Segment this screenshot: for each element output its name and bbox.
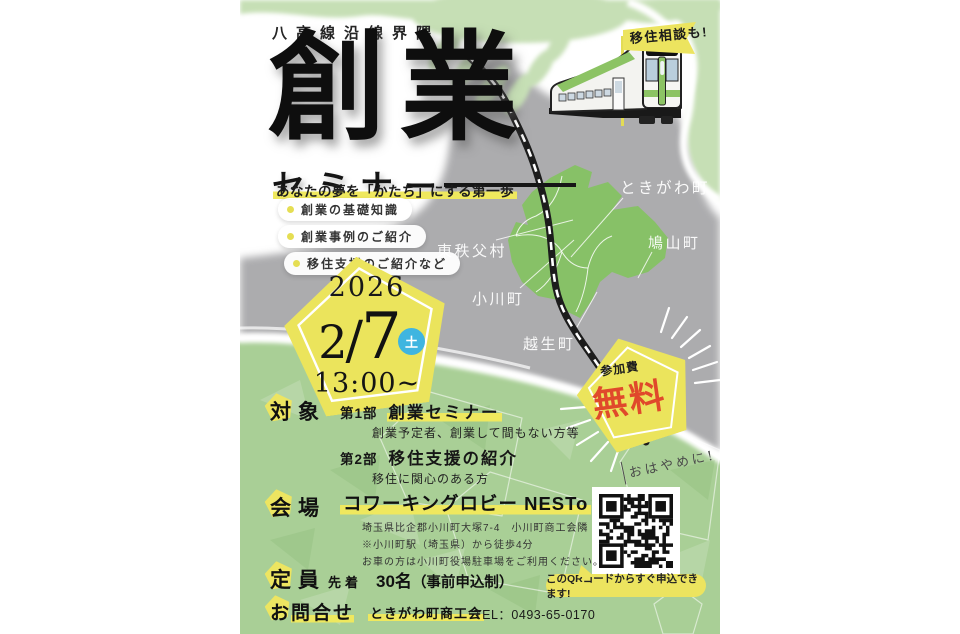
town-label-ogose: 越生町 <box>523 333 576 354</box>
target-part1-row: 第1部 創業セミナー <box>340 399 502 423</box>
label-first-char: 対 <box>270 396 298 426</box>
part2-title: 移住支援の紹介 <box>387 445 521 469</box>
poster-title: 創業 <box>268 26 532 150</box>
contact-org: ときがわ町商工会 <box>368 603 484 622</box>
label-first-char: 会 <box>270 492 298 522</box>
label-rest: 場 <box>298 497 326 520</box>
part2-no: 第2部 <box>340 448 378 468</box>
capacity-row: 先着 30名 （事前申込制） <box>328 567 513 592</box>
screenshot-stage: 移住相談も! 八高線沿線界隈 創業 セミナー あなたの夢を「かたち」にする第一歩… <box>0 0 960 634</box>
label-first-char: お <box>270 598 291 625</box>
fee-value: 無料 <box>589 367 669 428</box>
seminar-poster: 移住相談も! 八高線沿線界隈 創業 セミナー あなたの夢を「かたち」にする第一歩… <box>240 0 720 634</box>
capacity-value: 30名 <box>376 567 412 592</box>
date-day: 7 <box>361 300 402 374</box>
fee-badge: 参加費 無料 <box>578 336 692 444</box>
overlay-layer: 八高線沿線界隈 創業 セミナー あなたの夢を「かたち」にする第一歩 創業の基礎知… <box>240 0 720 634</box>
bullet-dot-icon <box>287 206 294 213</box>
bullet-pill: 創業の基礎知識 <box>278 198 412 221</box>
section-label-venue: 会場 <box>270 492 326 522</box>
town-label-ogawa: 小川町 <box>472 288 525 309</box>
bullet-text: 創業の基礎知識 <box>301 201 399 218</box>
date-year: 2026 <box>286 272 448 303</box>
section-label-target: 対象 <box>270 396 326 426</box>
target-part1-desc: 創業予定者、創業して間もない方等 <box>372 424 580 441</box>
part1-no: 第1部 <box>340 402 378 422</box>
qr-bubble: このQRコードからすぐ申込できます! <box>546 574 706 597</box>
qr-code-pattern <box>599 494 673 568</box>
target-part2-desc: 移住に関心のある方 <box>372 470 489 487</box>
label-rest: 員 <box>298 569 326 592</box>
venue-address: 埼玉県比企郡小川町大塚7-4 小川町商工会隣 <box>362 519 588 534</box>
bullet-pill: 創業事例のご紹介 <box>278 225 426 248</box>
capacity-prefix: 先着 <box>328 572 362 591</box>
town-label-higashichichibu: 東秩父村 <box>437 240 507 261</box>
section-label-contact: お問合せ <box>270 598 354 625</box>
part1-title: 創業セミナー <box>387 399 502 423</box>
town-label-hatoyama: 鳩山町 <box>648 232 701 253</box>
qr-code <box>592 487 680 575</box>
qr-note: おはやめに! <box>621 442 718 484</box>
qr-bubble-text: このQRコードからすぐ申込できます! <box>546 571 706 601</box>
venue-parking: お車の方は小川町役場駐車場をご利用ください。 <box>362 553 604 568</box>
date-badge: 2026 2/7 土 13:00~ <box>286 256 448 410</box>
contact-tel: TEL：0493-65-0170 <box>474 604 595 623</box>
date-month: 2 <box>318 315 347 369</box>
label-first-char: 定 <box>270 564 298 594</box>
bullet-text: 創業事例のご紹介 <box>301 228 413 245</box>
weekday-badge: 土 <box>398 328 425 355</box>
venue-access: ※小川町駅（埼玉県）から徒歩4分 <box>362 536 534 551</box>
date-time: 13:00~ <box>286 368 448 399</box>
label-rest: 問合せ <box>291 603 354 624</box>
bullet-dot-icon <box>287 233 294 240</box>
capacity-suffix: （事前申込制） <box>412 571 514 592</box>
target-part2-row: 第2部 移住支援の紹介 <box>340 445 520 469</box>
town-label-tokigawa: ときがわ町 <box>620 176 710 198</box>
tagline: あなたの夢を「かたち」にする第一歩 <box>273 180 517 200</box>
venue-name: コワーキングロビー NESTo <box>340 490 591 516</box>
section-label-capacity: 定員 <box>270 564 326 594</box>
label-rest: 象 <box>298 401 326 424</box>
